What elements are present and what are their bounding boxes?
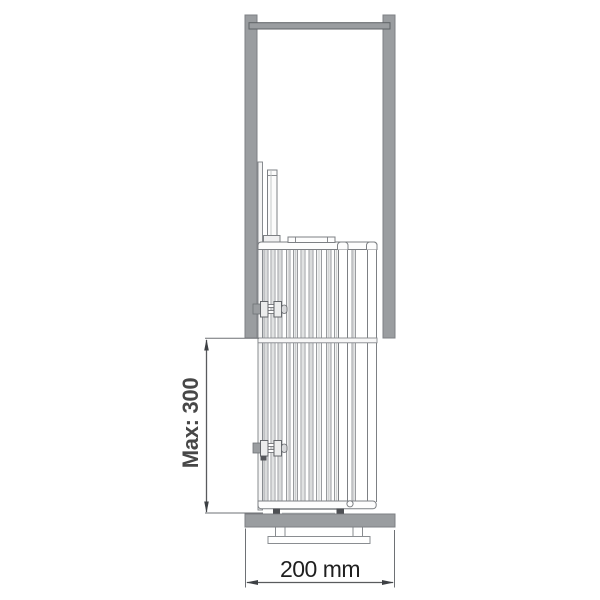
bracket-bar-top [268, 305, 274, 308]
bracket-wall-tab [253, 304, 261, 314]
bracket-plate-left [261, 302, 269, 318]
cabinet-bottom-shelf [245, 514, 395, 527]
basket-mid-rail [258, 338, 377, 343]
height-arrow-down [204, 502, 209, 514]
bracket-plate-right [274, 441, 282, 457]
basket-wires [264, 248, 377, 507]
basket-post-corner-outer [367, 242, 377, 250]
cabinet-left-panel [245, 15, 257, 338]
bracket-bar-bottom [268, 311, 274, 314]
slide-foot-right [337, 509, 345, 514]
basket-bottom-rail [258, 501, 376, 509]
slide-foot-left [273, 509, 280, 514]
technical-drawing: Max: 300 200 mm [0, 0, 600, 600]
back-rail-tube [268, 170, 278, 242]
height-dimension: Max: 300 [178, 338, 263, 513]
slide-roller [347, 501, 353, 507]
bracket-plate-right [274, 302, 282, 318]
bracket-knob [282, 444, 288, 453]
bracket-bar-top [268, 444, 274, 447]
width-arrow-left [246, 580, 258, 585]
cabinet-right-panel [383, 15, 395, 338]
basket-post-corner-inner [338, 242, 348, 250]
cabinet-top-rail [249, 23, 390, 29]
height-arrow-up [204, 339, 209, 351]
bracket-lock-block [261, 456, 267, 461]
bracket-knob [282, 305, 288, 314]
pedestal-base-plate [268, 537, 370, 544]
basket-top-rail [258, 242, 377, 250]
bracket-wall-tab [253, 443, 261, 453]
bracket-plate-left [261, 441, 269, 457]
width-arrow-right [382, 580, 394, 585]
width-dimension-label: 200 mm [280, 556, 360, 582]
height-dimension-label: Max: 300 [178, 378, 203, 469]
bracket-bar-bottom [268, 450, 274, 453]
drawing-canvas: Max: 300 200 mm [0, 0, 600, 600]
